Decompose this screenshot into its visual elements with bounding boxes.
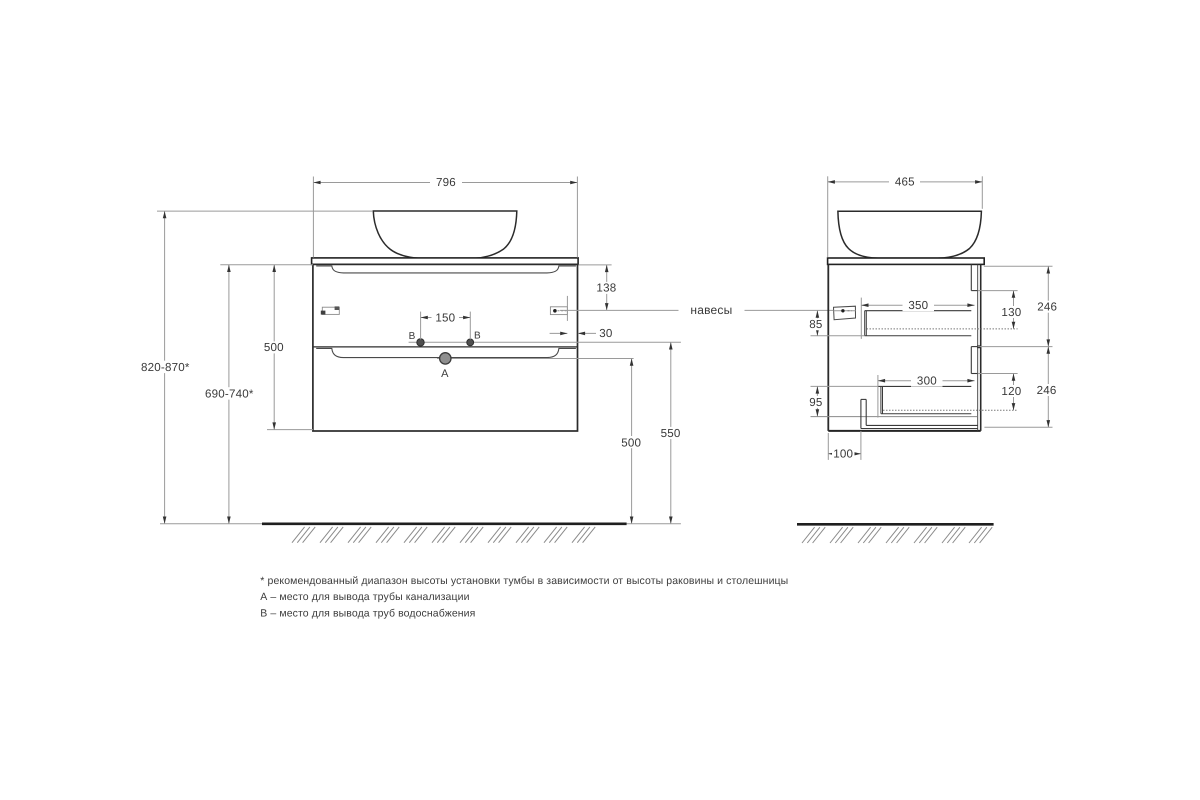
svg-text:500: 500 (621, 436, 641, 449)
svg-text:А – место для вывода трубы кан: А – место для вывода трубы канализации (260, 591, 469, 603)
svg-text:465: 465 (895, 175, 915, 188)
svg-text:300: 300 (917, 375, 937, 388)
svg-text:246: 246 (1037, 384, 1057, 397)
svg-text:B: B (474, 330, 481, 341)
svg-text:550: 550 (661, 427, 681, 440)
svg-text:130: 130 (1001, 306, 1021, 319)
svg-text:820-870*: 820-870* (141, 361, 190, 374)
svg-text:246: 246 (1037, 301, 1057, 314)
svg-text:120: 120 (1001, 385, 1021, 398)
svg-text:* рекомендованный диапазон выс: * рекомендованный диапазон высоты устано… (260, 575, 788, 587)
svg-text:350: 350 (908, 299, 928, 312)
svg-text:В – место для вывода труб водо: В – место для вывода труб водоснабжения (260, 608, 475, 620)
svg-text:150: 150 (435, 311, 455, 324)
svg-text:85: 85 (809, 318, 822, 331)
svg-text:690-740*: 690-740* (205, 388, 254, 401)
svg-text:95: 95 (809, 396, 822, 409)
svg-text:B: B (409, 331, 416, 342)
svg-text:30: 30 (599, 327, 612, 340)
svg-text:796: 796 (436, 176, 456, 189)
svg-text:138: 138 (596, 282, 616, 295)
svg-text:100: 100 (833, 448, 853, 461)
svg-text:500: 500 (264, 341, 284, 354)
svg-text:A: A (441, 368, 449, 380)
svg-text:навесы: навесы (690, 303, 732, 317)
